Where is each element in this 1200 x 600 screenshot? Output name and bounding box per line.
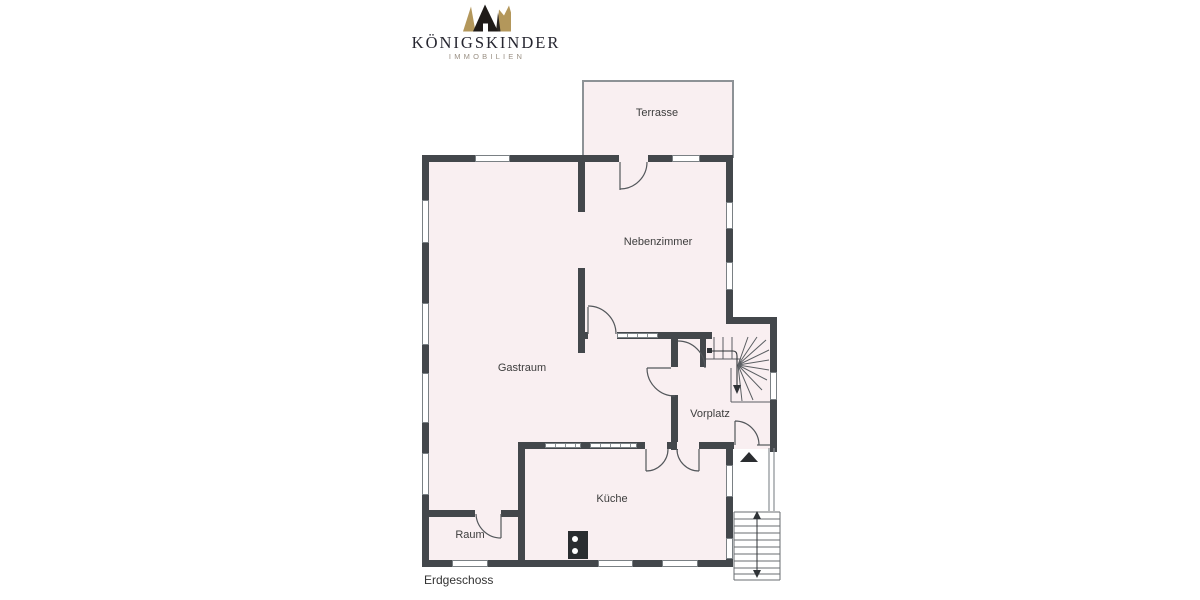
- winder-staircase: [706, 337, 770, 402]
- chimney-icon: [568, 531, 588, 559]
- floor-title: Erdgeschoss: [424, 573, 493, 587]
- entrance-arrow-icon: [740, 452, 758, 462]
- room-label-gastraum: Gastraum: [498, 362, 546, 374]
- door-arcs: [476, 162, 759, 538]
- railing: [769, 448, 774, 511]
- floor-plan-canvas: KÖNIGSKINDER IMMOBILIEN: [0, 0, 1200, 600]
- exterior-staircase: [734, 512, 780, 580]
- room-label-terrasse: Terrasse: [636, 107, 678, 119]
- room-label-kueche: Küche: [596, 493, 627, 505]
- room-label-nebenzimmer: Nebenzimmer: [624, 236, 692, 248]
- room-label-vorplatz: Vorplatz: [690, 408, 730, 420]
- walking-line: [707, 348, 741, 394]
- brand-name: KÖNIGSKINDER: [412, 33, 561, 53]
- brand-tagline: IMMOBILIEN: [449, 52, 525, 61]
- room-label-raum: Raum: [455, 529, 484, 541]
- crown-icon: [461, 3, 513, 33]
